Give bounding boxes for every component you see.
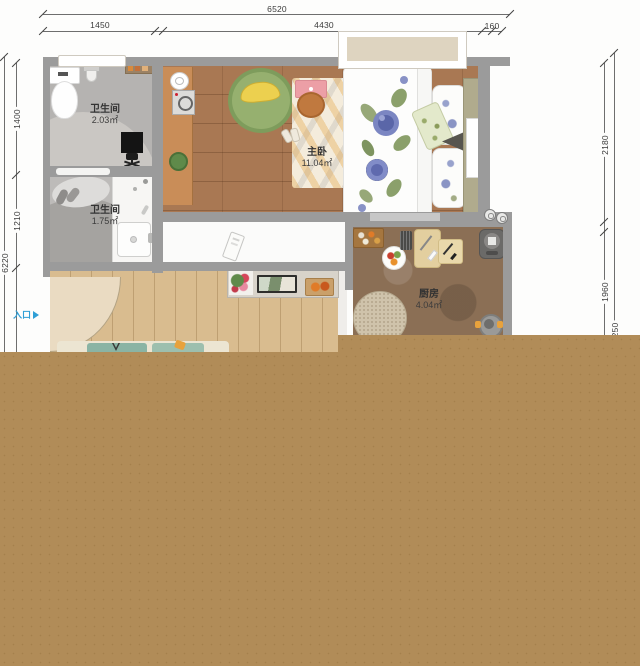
room-name: 厨房 — [399, 289, 459, 300]
entrance-text: 入口 — [13, 308, 31, 321]
dim-right-seg-2180: 2180 — [600, 133, 610, 157]
dim-top-seg-4430: 4430 — [314, 20, 334, 30]
floorplan-canvas: 6520 1450 4430 160 6220 1400 1210 2180 1… — [0, 0, 640, 666]
flower-vase — [229, 271, 253, 295]
dim-right-seg-1960: 1960 — [600, 280, 610, 304]
window-pane — [347, 37, 458, 61]
wall-kitchen-left — [345, 218, 353, 290]
dim-left-total: 6220 — [0, 251, 10, 275]
room-area: 2.03㎡ — [70, 115, 140, 126]
dim-top-seg-160: 160 — [485, 21, 500, 31]
bathroom-window — [58, 55, 126, 67]
cutting-board-1[interactable] — [414, 229, 441, 268]
dim-line-right-outer — [614, 53, 615, 335]
dim-top-total: 6520 — [267, 4, 287, 14]
bedroom-door — [370, 213, 440, 221]
tv — [257, 275, 297, 293]
serving-tray — [305, 278, 334, 296]
cutting-board-2[interactable] — [438, 239, 463, 264]
dim-line-top-total — [43, 14, 510, 15]
wall-kitchen-right — [503, 222, 512, 335]
pillow-bottom — [432, 148, 466, 208]
stool[interactable] — [297, 92, 325, 118]
dim-line-left-total — [4, 57, 5, 352]
tan-overlay-main — [0, 352, 640, 666]
desk-chair[interactable] — [123, 153, 141, 167]
bathroom2-label: 卫生间 1.75㎡ — [70, 205, 140, 227]
wall-bedroom-right — [478, 57, 490, 222]
bathroom1-label: 卫生间 2.03㎡ — [70, 104, 140, 126]
slippers[interactable] — [58, 187, 80, 207]
room-name: 卫生间 — [70, 205, 140, 216]
hallway-floor — [163, 222, 345, 262]
slippers-bedroom[interactable] — [283, 128, 298, 142]
room-area: 4.04㎡ — [399, 300, 459, 311]
potted-plant — [169, 152, 188, 171]
kitchen-label: 厨房 4.04㎡ — [399, 289, 459, 311]
bedroom-window — [338, 31, 467, 69]
room-area: 11.04㎡ — [287, 158, 347, 169]
dim-left-seg-1400: 1400 — [12, 107, 22, 131]
breakfast-tray[interactable] — [353, 228, 384, 248]
pepper-grinder[interactable] — [400, 231, 412, 250]
wardrobe[interactable] — [163, 67, 193, 205]
round-green-rug[interactable] — [228, 68, 294, 133]
knife-icon — [443, 243, 454, 255]
bedroom-label: 主卧 11.04㎡ — [287, 147, 347, 169]
room-name: 卫生间 — [70, 104, 140, 115]
door-hinge-icon — [484, 209, 496, 221]
bath-divider-door — [56, 168, 110, 175]
knife-icon — [420, 235, 433, 250]
entrance-arrow-icon — [33, 311, 39, 319]
banana-lounger — [239, 80, 281, 104]
bed[interactable] — [343, 67, 487, 216]
room-area: 1.75㎡ — [70, 216, 140, 227]
entrance-label: 入口 — [13, 308, 39, 321]
wall-bath-bedroom — [152, 57, 163, 273]
washing-machine — [172, 90, 195, 115]
room-name: 主卧 — [287, 147, 347, 158]
door-hinge-icon — [496, 212, 508, 224]
tan-overlay-right — [338, 335, 640, 353]
coffee-machine[interactable] — [479, 229, 505, 259]
dim-top-seg-1450: 1450 — [90, 20, 110, 30]
black-cabinet[interactable] — [121, 132, 143, 153]
wall-living-tv — [43, 262, 353, 271]
dim-left-seg-1210: 1210 — [12, 209, 22, 233]
tv-console[interactable] — [227, 269, 339, 298]
